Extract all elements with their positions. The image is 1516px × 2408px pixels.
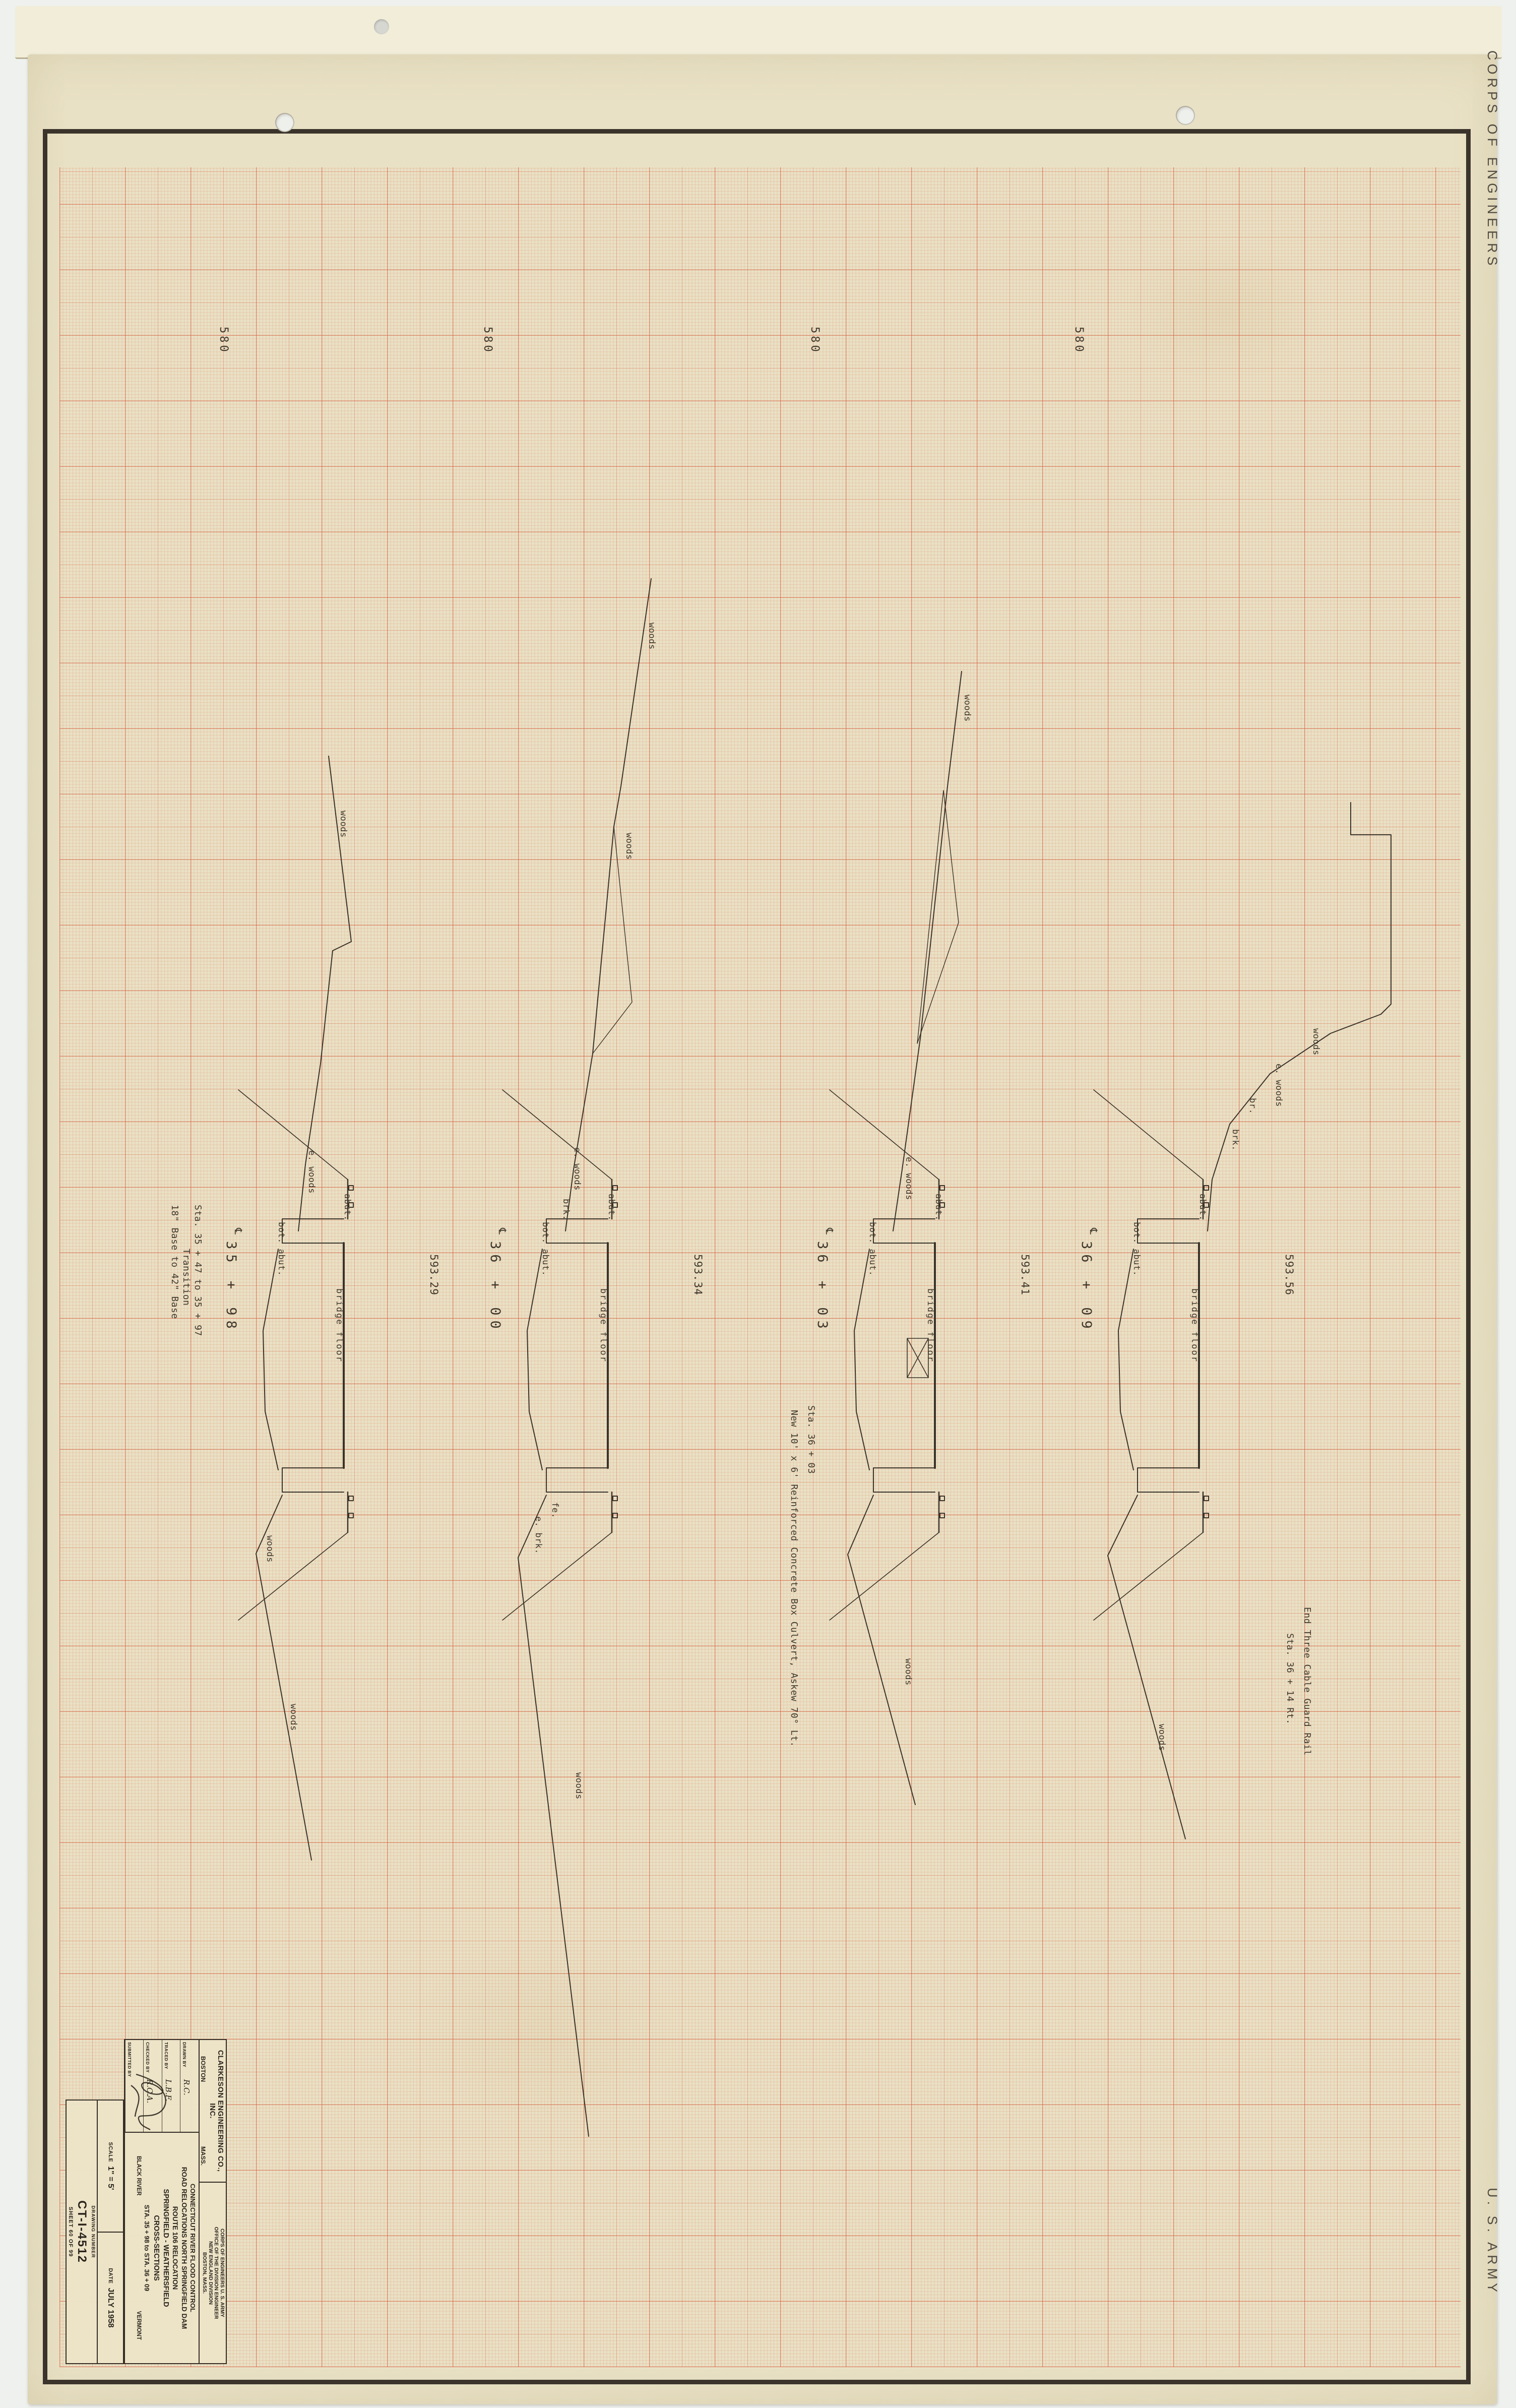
ground-line: [873, 1468, 935, 1492]
title-block-main: CLARKESON ENGINEERING CO., INC. BOSTON M…: [124, 2039, 227, 2364]
scanned-drawing-sheet: CORPS OF ENGINEERS U. S. ARMY woodse. wo…: [0, 0, 1516, 2408]
checked-by-value: R.C.A.: [146, 2079, 155, 2103]
ground-line: [1118, 1249, 1133, 1470]
ground-line: [263, 1249, 278, 1470]
annotation-label: Sta. 36 + 03: [806, 1405, 816, 1474]
annotation-label: ℄: [824, 1227, 836, 1234]
title-line: ROAD RELOCATIONS NORTH SPRINGFIELD DAM: [179, 2133, 188, 2363]
title-block-sub: SCALE 1" = 5' DATE JULY 1958 DRAWING NUM…: [66, 2100, 124, 2364]
drawing-linework: CORPS OF ENGINEERS U. S. ARMY woodse. wo…: [0, 0, 1516, 2408]
annotation-label: Transition: [181, 1249, 192, 1306]
company-state: MASS.: [200, 2146, 207, 2166]
guard-rail-posts: [349, 1186, 353, 1518]
annotation-label: End Three Cable Guard Rail: [1302, 1607, 1312, 1756]
location-right: VERMONT: [136, 2311, 142, 2340]
annotation-label: e. woods: [572, 1147, 582, 1191]
annotation-label: woods: [338, 811, 348, 838]
ground-line: [546, 1468, 608, 1492]
annotation-label: brk.: [1230, 1129, 1240, 1151]
annotation-label: e. woods: [904, 1157, 914, 1200]
ground-line: [238, 1090, 348, 1180]
agency-line: NEW ENGLAND DIVISION: [208, 2183, 214, 2363]
scale-value: 1" = 5': [106, 2166, 115, 2190]
date-label: DATE: [107, 2268, 113, 2283]
checked-by-label: CHECKED BY: [146, 2042, 151, 2079]
guard-rail-posts: [940, 1186, 944, 1518]
annotation-label: ℄: [496, 1227, 509, 1234]
ground-line: [830, 1090, 939, 1180]
ground-line: [1094, 1090, 1203, 1180]
section-3600: woodswoodse. woodsbrk.abut.bot. abut.fe.…: [481, 327, 704, 2136]
ground-line: [282, 1219, 344, 1243]
company-name: CLARKESON ENGINEERING CO., INC.: [208, 2043, 224, 2179]
submitted-by-label: SUBMITTED BY: [127, 2042, 132, 2079]
grade-elevation-label: 593.41: [1019, 1254, 1031, 1295]
drawn-by-label: DRAWN BY: [182, 2042, 187, 2079]
title-line: CROSS-SECTIONS: [151, 2133, 161, 2363]
annotation-label: woods: [288, 1704, 298, 1731]
title-line: CONNECTICUT RIVER FLOOD CONTROL: [188, 2133, 197, 2363]
title-line: STA. 35 + 98 to STA. 36 + 09: [143, 2133, 151, 2363]
datum-label: 580: [481, 327, 494, 354]
annotation-label: e. woods: [1274, 1064, 1284, 1107]
ground-line: [282, 1468, 344, 1492]
title-block: CLARKESON ENGINEERING CO., INC. BOSTON M…: [66, 2039, 227, 2364]
annotation-label: bridge floor: [334, 1288, 344, 1363]
annotation-label: bot. abut.: [867, 1222, 877, 1276]
ground-line: [329, 756, 351, 951]
ground-line: [1108, 1556, 1185, 1839]
ground-line: [502, 1090, 612, 1180]
hatched-fill-wedge: [593, 827, 632, 1054]
ground-line: [1351, 802, 1391, 1014]
drawing-number-label: DRAWING NUMBER: [89, 2101, 97, 2363]
annotation-label: woods: [574, 1772, 584, 1800]
ground-line: [565, 579, 651, 1231]
margin-corps-of-engineers: CORPS OF ENGINEERS: [1485, 50, 1500, 269]
agency-line: OFFICE OF THE DIVISION ENGINEER: [213, 2183, 219, 2363]
annotation-label: woods: [624, 833, 634, 860]
traced-by-value: L.B.F.: [164, 2079, 173, 2101]
scale-cell: SCALE 1" = 5': [98, 2101, 123, 2233]
ground-line: [1138, 1219, 1199, 1243]
ground-line: [502, 1532, 612, 1620]
ground-line: [527, 1249, 542, 1470]
annotation-label: br.: [1247, 1098, 1257, 1114]
ground-line: [1094, 1532, 1203, 1620]
annotation-label: bot. abut.: [540, 1222, 550, 1276]
traced-by-label: TRACED BY: [164, 2042, 169, 2079]
annotation-label: woods: [647, 623, 657, 650]
sheet-number: SHEET 60 OF 99: [66, 2101, 74, 2363]
annotation-label: woods: [1157, 1724, 1167, 1751]
annotation-label: New 10' x 6' Reinforced Concrete Box Cul…: [789, 1410, 799, 1747]
section-3598: woodse. woodsabut.bot. abut.woodswoodsbr…: [169, 327, 440, 1860]
annotation-label: abut.: [933, 1194, 943, 1221]
guard-rail-posts: [613, 1186, 617, 1518]
station-label: 35 + 98: [223, 1241, 239, 1334]
signature-column: DRAWN BY R.C. TRACED BY L.B.F. CHECKED B…: [125, 2040, 199, 2133]
annotation-label: brk.: [561, 1199, 571, 1220]
scale-label: SCALE: [107, 2142, 113, 2162]
date-cell: DATE JULY 1958: [98, 2233, 123, 2363]
ground-line: [546, 1219, 608, 1243]
annotation-label: bridge floor: [1189, 1288, 1199, 1363]
date-value: JULY 1958: [106, 2288, 115, 2327]
annotation-label: abut.: [606, 1194, 616, 1221]
annotation-label: woods: [265, 1535, 275, 1563]
annotation-label: woods: [962, 695, 972, 722]
annotation-label: ℄: [1088, 1227, 1100, 1234]
station-label: 36 + 09: [1079, 1241, 1094, 1334]
annotation-label: fe.: [550, 1502, 560, 1518]
grade-elevation-label: 593.56: [1283, 1254, 1295, 1295]
agency-cell: CORPS OF ENGINEERS U. S. ARMY OFFICE OF …: [200, 2183, 226, 2363]
station-label: 36 + 03: [814, 1241, 830, 1334]
annotation-label: bot. abut.: [276, 1222, 286, 1276]
datum-label: 580: [1072, 327, 1085, 354]
annotation-label: e. woods: [306, 1150, 317, 1194]
cross-sections: woodse. woodsabut.bot. abut.woodswoodsbr…: [169, 327, 1391, 2136]
annotation-label: 18" Base to 42" Base: [169, 1205, 180, 1319]
section-3609: woodse. woodsbr.brk.abut.bot. abut.woods…: [1072, 327, 1391, 1839]
drawing-title-cell: CONNECTICUT RIVER FLOOD CONTROL ROAD REL…: [125, 2133, 199, 2363]
ground-line: [830, 1532, 939, 1620]
ground-line: [1108, 1495, 1138, 1556]
drawing-number: CT-I-4512: [74, 2101, 89, 2363]
ground-line: [518, 1558, 589, 2136]
annotation-label: bridge floor: [925, 1288, 935, 1363]
title-line: SPRINGFIELD - WEATHERSFIELD: [161, 2133, 170, 2363]
grade-elevation-label: 593.29: [428, 1254, 440, 1295]
annotation-label: abut.: [1197, 1194, 1208, 1221]
ground-line: [1208, 1014, 1381, 1231]
grade-elevation-label: 593.34: [692, 1254, 704, 1295]
guard-rail-posts: [1204, 1186, 1209, 1518]
datum-label: 580: [217, 327, 230, 354]
annotation-label: bot. abut.: [1131, 1222, 1142, 1276]
section-3603: woodse. woodsabut.bot. abut.woodsbridge …: [789, 327, 1031, 1805]
ground-line: [893, 671, 962, 1231]
annotation-label: Sta. 36 + 14 Rt.: [1285, 1633, 1295, 1724]
margin-us-army: U. S. ARMY: [1485, 2188, 1500, 2296]
title-line: ROUTE 106 RELOCATION: [170, 2133, 179, 2363]
location-left: BLACK RIVER: [136, 2156, 142, 2196]
ground-line: [1138, 1468, 1199, 1492]
annotation-label: bridge floor: [598, 1288, 608, 1363]
annotation-label: abut.: [342, 1194, 352, 1221]
ground-line: [873, 1219, 935, 1243]
annotation-label: ℄: [232, 1227, 244, 1234]
station-label: 36 + 00: [487, 1241, 503, 1334]
ground-line: [848, 1495, 873, 1555]
datum-label: 580: [808, 327, 821, 354]
culvert-box: [907, 1338, 928, 1378]
annotation-label: woods: [903, 1658, 913, 1686]
ground-line: [256, 1554, 311, 1860]
annotation-label: Sta. 35 + 47 to 35 + 97: [193, 1205, 203, 1336]
company-cell: CLARKESON ENGINEERING CO., INC. BOSTON M…: [200, 2040, 226, 2183]
annotation-label: e. brk.: [533, 1516, 543, 1554]
annotation-label: woods: [1311, 1028, 1321, 1056]
agency-line: BOSTON, MASS.: [202, 2183, 208, 2363]
ground-line: [854, 1249, 869, 1470]
ground-line: [238, 1532, 348, 1620]
company-city: BOSTON: [200, 2056, 207, 2082]
agency-line: CORPS OF ENGINEERS U. S. ARMY: [219, 2183, 225, 2363]
drawn-by-value: R.C.: [182, 2079, 192, 2095]
